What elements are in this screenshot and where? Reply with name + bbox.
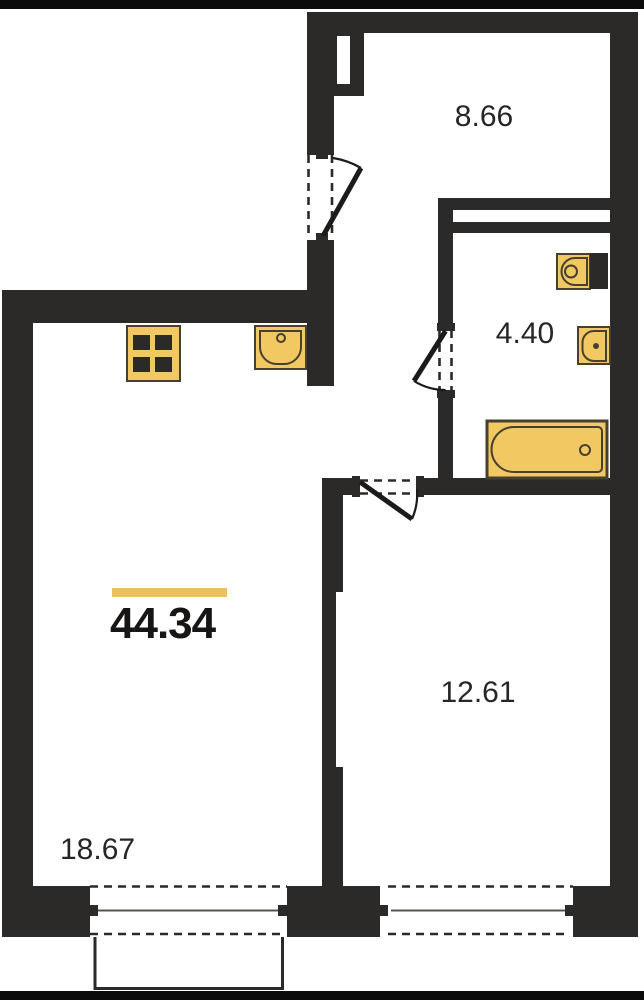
pier-bottom-right	[573, 886, 638, 937]
washbasin-fixture	[578, 327, 610, 364]
entrance-door	[309, 152, 362, 240]
area-label-living-kitchen: 18.67	[60, 833, 135, 867]
bathroom-door	[414, 323, 455, 398]
stove-burner	[133, 357, 150, 372]
door-swing-arc	[333, 158, 361, 168]
window-living-room	[90, 887, 287, 935]
floor-plan-page: 44.34 8.66 4.40 12.61 18.67	[0, 0, 644, 1000]
wall-corridor-bottom-right	[416, 478, 610, 495]
door-stop-tick	[437, 390, 455, 398]
area-label-hall: 8.66	[438, 100, 530, 134]
door-stop-tick	[316, 152, 328, 159]
vent-shaft-slot	[337, 36, 350, 84]
window-room	[380, 887, 573, 935]
balcony-outline	[95, 937, 283, 989]
door-leaf	[323, 168, 361, 236]
window-jamb-tick	[90, 905, 98, 916]
stove-burner	[155, 357, 172, 372]
door-stop-tick	[352, 476, 360, 497]
door-swing-arc	[412, 489, 417, 519]
wall-left	[2, 290, 33, 935]
area-label-total: 44.34	[110, 600, 215, 648]
stove-body	[127, 326, 180, 381]
toilet-cistern	[590, 253, 608, 289]
bathtub-fixture	[487, 421, 607, 478]
total-area-accent-bar	[112, 588, 227, 597]
sink-body	[255, 326, 306, 369]
window-jamb-tick	[278, 905, 287, 916]
wall-bathroom-left-lower	[438, 392, 453, 478]
door-leaf	[360, 482, 412, 519]
wall-hall-left-lower	[307, 240, 334, 386]
room-door	[352, 476, 424, 519]
wall-right	[610, 12, 638, 937]
stove-fixture	[127, 326, 180, 381]
window-jamb-tick	[380, 905, 388, 916]
washbasin-drain	[593, 343, 599, 349]
wall-hall-left-upper	[307, 12, 334, 155]
wall-center-step	[336, 592, 343, 767]
wall-kitchen-top	[2, 290, 307, 323]
window-jamb-tick	[565, 905, 573, 916]
area-label-bathroom: 4.40	[479, 317, 571, 351]
wall-bathroom-duct-slot	[453, 210, 610, 222]
wall-bathroom-left-upper	[438, 198, 453, 328]
pier-bottom-center	[287, 886, 380, 937]
kitchen-sink-fixture	[255, 326, 306, 369]
stove-burner	[133, 335, 150, 350]
area-label-room: 12.61	[432, 676, 524, 710]
pier-bottom-left	[2, 886, 90, 937]
toilet-fixture	[557, 253, 608, 289]
door-stop-tick	[437, 323, 455, 331]
stove-burner	[155, 335, 172, 350]
